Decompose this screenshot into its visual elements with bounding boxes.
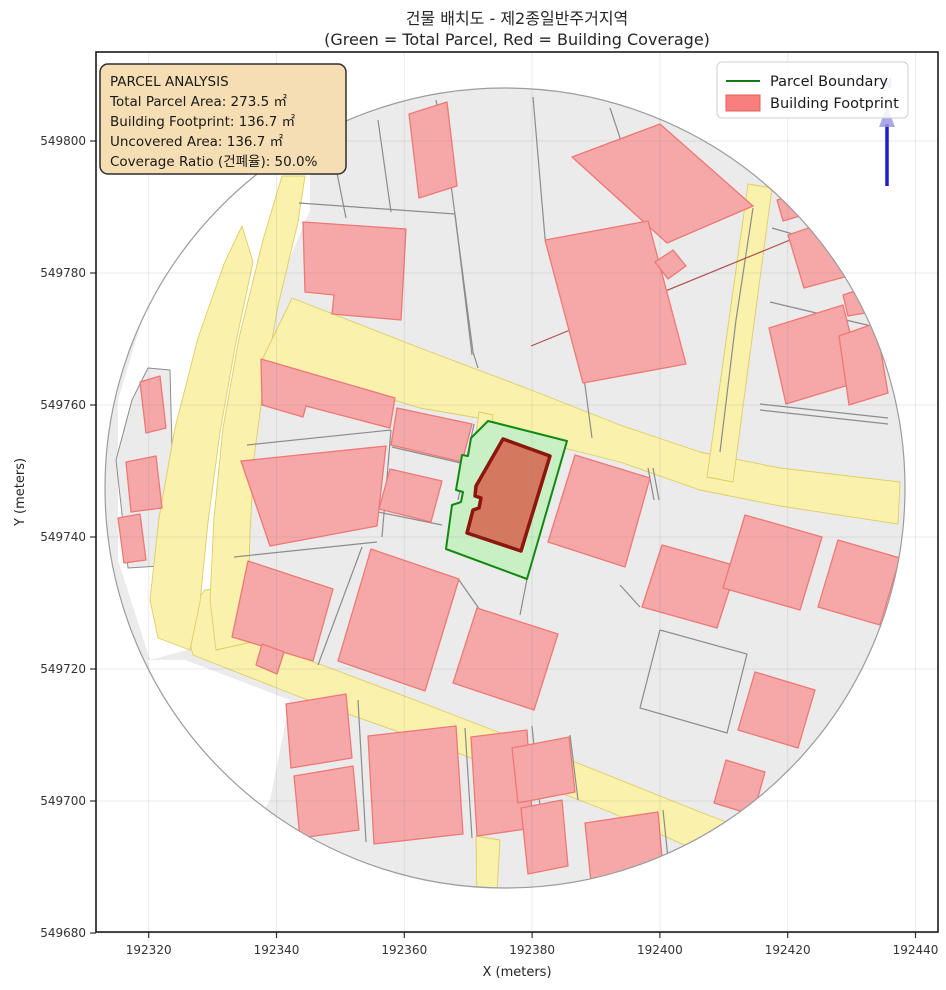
y-axis-label: Y (meters) — [13, 458, 28, 527]
figure-subtitle: (Green = Total Parcel, Red = Building Co… — [324, 30, 710, 49]
infobox-title: PARCEL ANALYSIS — [110, 74, 229, 90]
building-footprint — [521, 800, 568, 874]
y-tick-label: 549760 — [40, 398, 86, 412]
x-tick-label: 192400 — [637, 943, 683, 957]
x-tick-label: 192380 — [509, 943, 555, 957]
building-footprint — [512, 737, 575, 803]
y-tick-label: 549700 — [40, 794, 86, 808]
y-tick-label: 549800 — [40, 134, 86, 148]
infobox-uncovered-area: Uncovered Area: 136.7 ㎡ — [110, 134, 284, 150]
legend-label-parcel-boundary: Parcel Boundary — [770, 74, 888, 90]
building-footprint — [294, 766, 359, 838]
x-tick-label: 192360 — [381, 943, 427, 957]
figure-title: 건물 배치도 - 제2종일반주거지역 — [406, 9, 629, 28]
x-tick-label: 192440 — [893, 943, 939, 957]
building-footprint — [368, 726, 463, 844]
infobox-total-area: Total Parcel Area: 273.5 ㎡ — [109, 94, 287, 110]
y-tick-label: 549740 — [40, 530, 86, 544]
legend-label-building-footprint: Building Footprint — [770, 96, 899, 112]
x-tick-label: 192420 — [765, 943, 811, 957]
y-tick-label: 549780 — [40, 266, 86, 280]
x-tick-label: 192320 — [126, 943, 172, 957]
figure-canvas: 건물 배치도 - 제2종일반주거지역 (Green = Total Parcel… — [0, 0, 946, 990]
infobox-coverage-ratio: Coverage Ratio (건폐율): 50.0% — [110, 154, 318, 170]
building-footprint — [286, 694, 352, 768]
y-tick-label: 549720 — [40, 662, 86, 676]
y-tick-label: 549680 — [40, 926, 86, 940]
infobox-building-footprint: Building Footprint: 136.7 ㎡ — [110, 114, 296, 130]
x-tick-label: 192340 — [254, 943, 300, 957]
parcel-analysis-infobox: PARCEL ANALYSIS Total Parcel Area: 273.5… — [100, 64, 346, 174]
building-footprint-swatch — [726, 95, 760, 111]
legend: Parcel Boundary Building Footprint — [717, 62, 908, 118]
x-axis-label: X (meters) — [482, 965, 551, 980]
map-figure: 건물 배치도 - 제2종일반주거지역 (Green = Total Parcel… — [0, 0, 946, 990]
building-footprint — [126, 456, 162, 512]
